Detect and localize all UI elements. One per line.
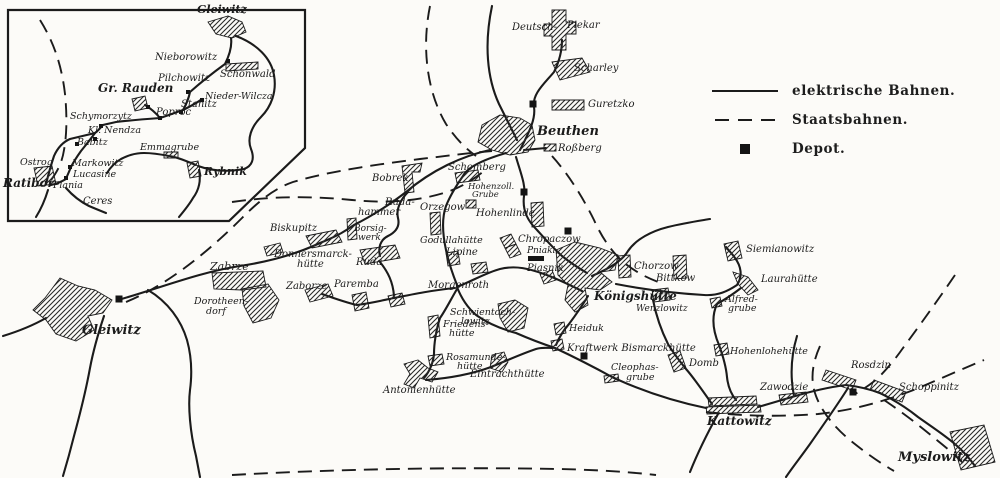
kraftwerk-bismarckhuette-area (551, 339, 564, 351)
rosamundehuette-area (428, 354, 444, 366)
place-label-grube: grube (728, 303, 757, 314)
paremba-east-area (388, 293, 405, 307)
place-label-plania: Plania (52, 180, 83, 191)
place-label-wenzlowitz: Wenzlowitz (636, 304, 688, 314)
place-label-nieder-wilcza: Nieder-Wilcza (204, 91, 273, 102)
kattowitz-1-area (708, 396, 757, 406)
station-marker (186, 90, 190, 94)
staatsbahn-line (855, 275, 955, 394)
friedenshuette-area (428, 315, 440, 338)
place-label-werk: werk (358, 233, 381, 243)
hohenlohehuette-area (714, 343, 729, 356)
rossberg-area (544, 144, 556, 151)
place-label-beuthen: Beuthen (536, 124, 599, 139)
place-label-kattowitz: Kattowitz (706, 414, 773, 428)
heiduk-area (554, 322, 566, 335)
place-label-domb: Domb (688, 358, 719, 369)
place-label-godullahütte: Godullahütte (420, 235, 483, 246)
legend-label-electric: elektrische Bahnen. (792, 83, 955, 99)
place-label-scharley: Scharley (574, 63, 619, 74)
guretzko-area (552, 100, 584, 110)
place-label-orzegow: Orzegow (420, 202, 466, 213)
place-label-rosdzin: Rosdzin (850, 360, 891, 371)
place-label-gleiwitz: Gleiwitz (82, 323, 141, 338)
place-label-laurahütte: Laurahütte (760, 274, 818, 285)
electric-railway-line (36, 190, 48, 217)
place-label-ostrog: Ostrog (20, 157, 53, 168)
place-label-zaborze: Zaborze (285, 281, 327, 292)
place-label-bittkow: Bittkow (655, 273, 696, 284)
place-label-schymorzytz: Schymorzytz (70, 111, 133, 122)
kattowitz-2-area (706, 405, 761, 414)
depot-marker (116, 296, 123, 303)
chorzow-area (618, 255, 631, 278)
depot-marker (850, 389, 857, 396)
place-label-ruda: Ruda (355, 257, 382, 268)
place-label-hohenlohehütte: Hohenlohehütte (729, 346, 808, 357)
depot-square-swatch (710, 144, 780, 154)
place-label-gleiwitz: Gleiwitz (197, 3, 247, 16)
depot-marker (521, 189, 528, 196)
place-label-zawodzie: Zawodzie (759, 382, 808, 393)
place-label-gr-rauden: Gr. Rauden (98, 81, 173, 95)
depot-marker (530, 101, 537, 108)
place-label-babitz: Babitz (76, 137, 109, 148)
electric-railway-line (63, 316, 104, 476)
place-label-hütte: hütte (297, 259, 324, 270)
place-labels: Deutsch-PiekarScharleyGuretzkoBeuthenRoß… (2, 3, 971, 465)
place-label-lipine: Lipine (445, 247, 478, 258)
station-marker (146, 105, 150, 109)
lipine-area (471, 262, 488, 274)
electric-railway-lines (3, 6, 975, 477)
place-label-deutsch: Deutsch- (511, 22, 558, 33)
place-label-grube: grube (626, 372, 655, 383)
legend-label-depot: Depot. (792, 141, 845, 157)
place-label-antonienhütte: Antonienhütte (382, 385, 456, 396)
pniaki-bar (528, 256, 544, 261)
siemianowitz-area (724, 241, 742, 261)
place-label-guretzko: Guretzko (588, 99, 635, 110)
place-label-piekar: Piekar (566, 20, 601, 31)
legend-item-staatsbahnen: Staatsbahnen. (710, 113, 955, 127)
place-label-emmagrube: Emmagrube (139, 142, 199, 153)
place-label-siemianowitz: Siemianowitz (746, 244, 815, 255)
station-marker (226, 59, 230, 63)
place-label-zabrze: Zabrze (209, 260, 249, 273)
place-label-rybnik: Rybnik (203, 165, 247, 178)
place-label-ratibor: Ratibor (2, 176, 56, 190)
electric-railway-line (3, 318, 46, 336)
place-label-myslowitz: Myslowitz (897, 450, 971, 465)
place-label-markowitz: Markowitz (71, 158, 124, 169)
place-label-dorf: dorf (206, 306, 227, 317)
place-label-piasnik: Piasnik (526, 263, 564, 274)
inset-gr-rauden-area (132, 96, 148, 111)
place-label-hütte: hütte (449, 328, 475, 339)
electric-line-swatch (710, 90, 780, 93)
place-label-chropaczow: Chropaczow (518, 234, 581, 245)
map-canvas: Deutsch-PiekarScharleyGuretzkoBeuthenRoß… (0, 0, 1000, 478)
paremba-area (352, 292, 369, 311)
staatsbahn-line (232, 171, 484, 202)
place-label-grube: Grube (472, 190, 499, 200)
place-label-heiduk: Heiduk (568, 323, 604, 334)
legend-item-electric: elektrische Bahnen. (710, 84, 955, 98)
electric-railway-line (148, 290, 200, 477)
place-label-hammer: hammer (358, 207, 401, 218)
place-label-schönwald: Schönwald (220, 69, 275, 80)
place-label-paremba: Paremba (333, 279, 379, 290)
inset-rybnik-area (187, 161, 201, 178)
staatsbahnen-line-swatch (710, 119, 780, 122)
zawodzie-area (779, 392, 808, 405)
place-label-nieborowitz: Nieborowitz (154, 52, 218, 63)
place-label-roßberg: Roßberg (557, 143, 602, 154)
staatsbahn-line (426, 6, 476, 156)
alfredgrube-area (710, 297, 722, 308)
place-label-hohenlinde: Hohenlinde (475, 208, 535, 219)
place-label-königshütte: Königshütte (593, 289, 677, 303)
legend: elektrische Bahnen. Staatsbahnen. Depot. (710, 84, 955, 171)
place-label-eintrachthütte: Eintrachthütte (469, 369, 545, 380)
place-label-chorzow: Chorzow (634, 261, 679, 272)
beuthen-town-area (478, 115, 535, 155)
place-label-bobrek: Bobrek (371, 173, 409, 184)
place-label-lucasine: Lucasine (72, 169, 116, 180)
place-label-biskupitz: Biskupitz (269, 223, 318, 234)
place-label-poproc: Poproc (155, 107, 192, 118)
legend-label-staatsbahnen: Staatsbahnen. (792, 112, 908, 128)
place-label-kraftwerk-bismarckhütte: Kraftwerk Bismarckhütte (566, 343, 696, 354)
domb-area (668, 351, 686, 372)
legend-item-depot: Depot. (710, 142, 955, 156)
hohenzollerngrube-area (466, 200, 476, 208)
place-label-pniaki: Pniaki (526, 246, 556, 256)
place-label-schomberg: Schomberg (448, 162, 506, 173)
place-label-morgenroth: Morgenroth (427, 280, 489, 291)
silesia-railway-map: Deutsch-PiekarScharleyGuretzkoBeuthenRoß… (0, 0, 1000, 478)
place-label-ceres: Ceres (83, 196, 112, 207)
place-label-kl-nendza: Kl. Nendza (87, 125, 141, 136)
cleophasgrube-area (604, 374, 619, 383)
inset-gleiwitz-area (208, 16, 246, 38)
orzegow-area (430, 212, 441, 235)
place-label-schoppinitz: Schoppinitz (899, 382, 960, 393)
staatsbahn-line (232, 468, 656, 475)
